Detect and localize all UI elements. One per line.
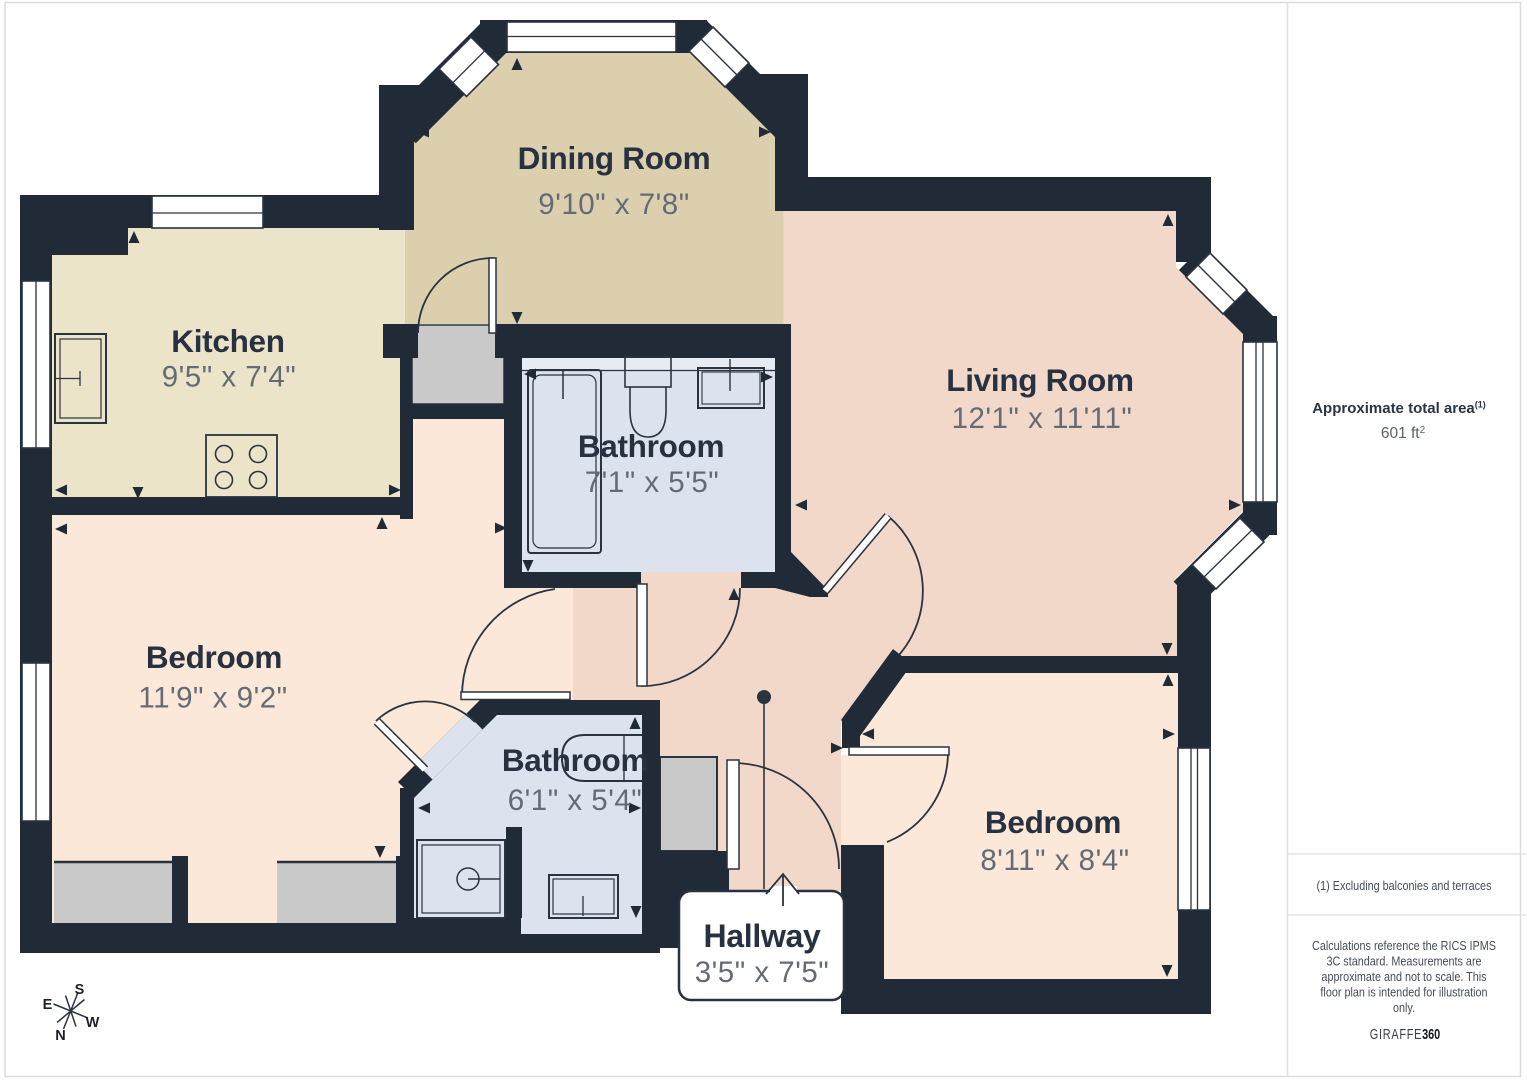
svg-text:3C standard. Measurements are: 3C standard. Measurements are — [1326, 953, 1481, 968]
svg-text:Living Room: Living Room — [946, 362, 1133, 398]
svg-text:8'11" x 8'4": 8'11" x 8'4" — [980, 844, 1129, 877]
svg-text:6'1" x 5'4": 6'1" x 5'4" — [508, 784, 642, 817]
svg-text:Hallway: Hallway — [703, 918, 821, 954]
svg-text:Bathroom: Bathroom — [502, 742, 648, 778]
svg-text:9'10" x 7'8": 9'10" x 7'8" — [538, 188, 689, 221]
svg-text:Approximate total area(1): Approximate total area(1) — [1312, 400, 1486, 418]
svg-text:approximate and not to scale.: approximate and not to scale. This — [1321, 969, 1486, 984]
svg-text:GIRAFFE360: GIRAFFE360 — [1370, 1025, 1440, 1042]
svg-text:(1) Excluding balconies and te: (1) Excluding balconies and terraces — [1317, 878, 1492, 893]
svg-text:E: E — [43, 997, 53, 1013]
svg-text:9'5" x 7'4": 9'5" x 7'4" — [162, 361, 296, 394]
svg-text:floor plan is intended for ill: floor plan is intended for illustration — [1320, 984, 1487, 999]
svg-text:Kitchen: Kitchen — [171, 323, 284, 359]
svg-text:only.: only. — [1393, 1000, 1415, 1015]
svg-text:S: S — [75, 982, 85, 998]
svg-text:Bathroom: Bathroom — [578, 428, 724, 464]
svg-text:Bedroom: Bedroom — [146, 639, 282, 675]
svg-text:W: W — [86, 1015, 100, 1031]
svg-text:Dining Room: Dining Room — [518, 140, 711, 176]
svg-text:11'9" x 9'2": 11'9" x 9'2" — [138, 682, 287, 715]
svg-text:7'1" x 5'5": 7'1" x 5'5" — [585, 466, 719, 499]
svg-text:N: N — [55, 1028, 65, 1044]
svg-text:12'1" x 11'11": 12'1" x 11'11" — [952, 402, 1133, 435]
svg-text:3'5" x 7'5": 3'5" x 7'5" — [695, 956, 829, 989]
svg-text:601 ft2: 601 ft2 — [1381, 425, 1426, 442]
svg-text:Bedroom: Bedroom — [985, 804, 1121, 840]
svg-text:Calculations reference the RIC: Calculations reference the RICS IPMS — [1312, 938, 1496, 953]
